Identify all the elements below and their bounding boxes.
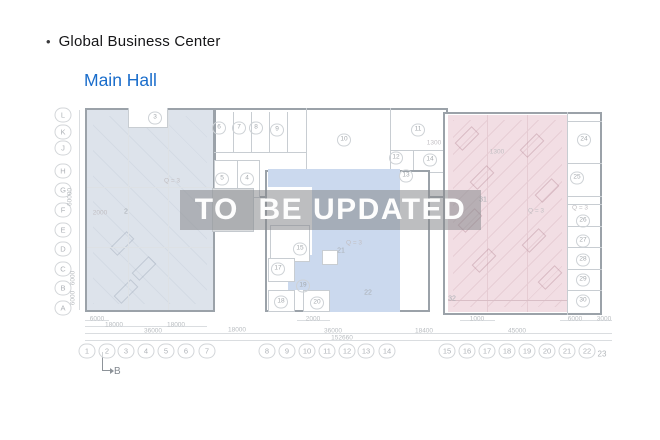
col-axis-label: 15 (439, 344, 456, 359)
plan-annotation: 2000 (93, 210, 107, 217)
room-number-badge: 25 (570, 172, 584, 185)
row-axis-label: E (55, 223, 72, 238)
room-number-badge: 4 (240, 173, 254, 186)
room-number-badge: 26 (576, 215, 590, 228)
section-marker-line (102, 370, 110, 371)
wall (567, 112, 568, 315)
room-number-label: 22 (364, 290, 372, 297)
room-number-badge: 5 (215, 173, 229, 186)
col-axis-label: 10 (299, 344, 316, 359)
row-axis-label: K (55, 125, 72, 140)
dimension-label: 45000 (508, 328, 526, 335)
room-number-badge: 10 (337, 134, 351, 147)
plan-annotation: 1300 (427, 140, 441, 147)
room-number-badge: 14 (423, 154, 437, 167)
room-number-badge: 30 (576, 295, 590, 308)
col-axis-label: 17 (479, 344, 496, 359)
room-number-badge: 13 (399, 170, 413, 183)
col-axis-label: 22 (579, 344, 596, 359)
plan-annotation: 1300 (490, 149, 504, 156)
grid-line (487, 115, 488, 312)
watermark-text: TO BE UPDATED (195, 193, 467, 227)
room-number-badge: 27 (576, 235, 590, 248)
col-axis-label: 18 (499, 344, 516, 359)
plan-annotation: Q = 3 (572, 205, 588, 212)
dimension-label: 2000 (306, 316, 320, 323)
col-axis-label: 6 (178, 344, 195, 359)
col-axis-label: 8 (259, 344, 276, 359)
wall (567, 269, 602, 270)
dimension-label: 1000 (470, 316, 484, 323)
room-number-label: 2 (124, 209, 128, 216)
dim-line (79, 110, 80, 310)
dimension-label-vertical: 6000 (70, 291, 77, 305)
row-axis-label: J (55, 141, 72, 156)
col-axis-label: 9 (279, 344, 296, 359)
wall (567, 196, 602, 197)
col-axis-label: 2 (99, 344, 116, 359)
wall (567, 121, 602, 122)
col-axis-label: 16 (459, 344, 476, 359)
col-axis-label: 5 (158, 344, 175, 359)
room-number-badge: 18 (274, 296, 288, 309)
grid-line (128, 128, 129, 310)
watermark-band: TO BE UPDATED (180, 190, 481, 230)
room-number-label: 21 (337, 248, 345, 255)
room-number-badge: 29 (576, 274, 590, 287)
col-axis-label: 3 (118, 344, 135, 359)
dimension-label: 18000 (105, 322, 123, 329)
wall (567, 290, 602, 291)
room-number-badge: 11 (411, 124, 425, 137)
col-axis-label: 20 (539, 344, 556, 359)
room-number-badge: 17 (271, 263, 285, 276)
page: • Global Business Center Main Hall (0, 0, 660, 440)
room-number-badge: 6 (212, 122, 226, 135)
dimension-label-vertical: 60000 (67, 188, 74, 206)
hall-title[interactable]: Main Hall (84, 70, 157, 91)
dimension-label: 36000 (144, 328, 162, 335)
room-number-badge: 28 (576, 254, 590, 267)
plan-annotation: Q = 3 (528, 208, 544, 215)
row-axis-label: D (55, 242, 72, 257)
room-number-badge: 12 (389, 152, 403, 165)
dimension-label: 18000 (167, 322, 185, 329)
bullet-icon: • (46, 35, 51, 48)
dimension-label: 18400 (415, 328, 433, 335)
header: • Global Business Center (46, 33, 221, 50)
col-axis-label: 14 (379, 344, 396, 359)
row-axis-label: H (55, 164, 72, 179)
wall (390, 150, 448, 151)
section-marker-label: B (114, 366, 121, 377)
col-axis-label: 11 (319, 344, 336, 359)
grid-line (168, 110, 169, 310)
grid-line (87, 247, 213, 248)
plan-annotation: Q = 3 (164, 178, 180, 185)
dimension-label: 6000 (90, 316, 104, 323)
region-highlight-blue-band (268, 169, 400, 187)
col-axis-label: 19 (519, 344, 536, 359)
col-axis-label: 7 (199, 344, 216, 359)
page-title: Global Business Center (59, 33, 221, 50)
room-number-badge: 24 (577, 134, 591, 147)
dimension-label: 3000 (597, 316, 611, 323)
room-number-label: 32 (448, 296, 456, 303)
room-number-badge: 20 (310, 297, 324, 310)
dimension-label: 6000 (568, 316, 582, 323)
col-axis-label: 13 (358, 344, 375, 359)
dimension-label: 18000 (228, 327, 246, 334)
room-box (322, 250, 338, 265)
dimension-label: 36000 (324, 328, 342, 335)
col-axis-label: 21 (559, 344, 576, 359)
col-axis-label: 12 (339, 344, 356, 359)
room-number-badge: 3 (148, 112, 162, 125)
dimension-label: 152660 (331, 335, 353, 342)
col-axis-label: 1 (79, 344, 96, 359)
col-axis-label-23: 23 (598, 350, 607, 359)
room-number-badge: 15 (293, 243, 307, 256)
grid-line (87, 187, 213, 188)
wall (567, 163, 602, 164)
grid-line (448, 300, 567, 301)
wall (214, 152, 307, 153)
wall (287, 112, 288, 152)
room-number-badge: 9 (270, 124, 284, 137)
row-axis-label: L (55, 108, 72, 123)
plan-annotation: Q = 3 (346, 240, 362, 247)
room-number-badge: 7 (232, 122, 246, 135)
room-number-badge: 8 (249, 122, 263, 135)
room-number-badge: 19 (296, 280, 310, 293)
col-axis-label: 4 (138, 344, 155, 359)
dimension-label-vertical: 6000 (70, 271, 77, 285)
